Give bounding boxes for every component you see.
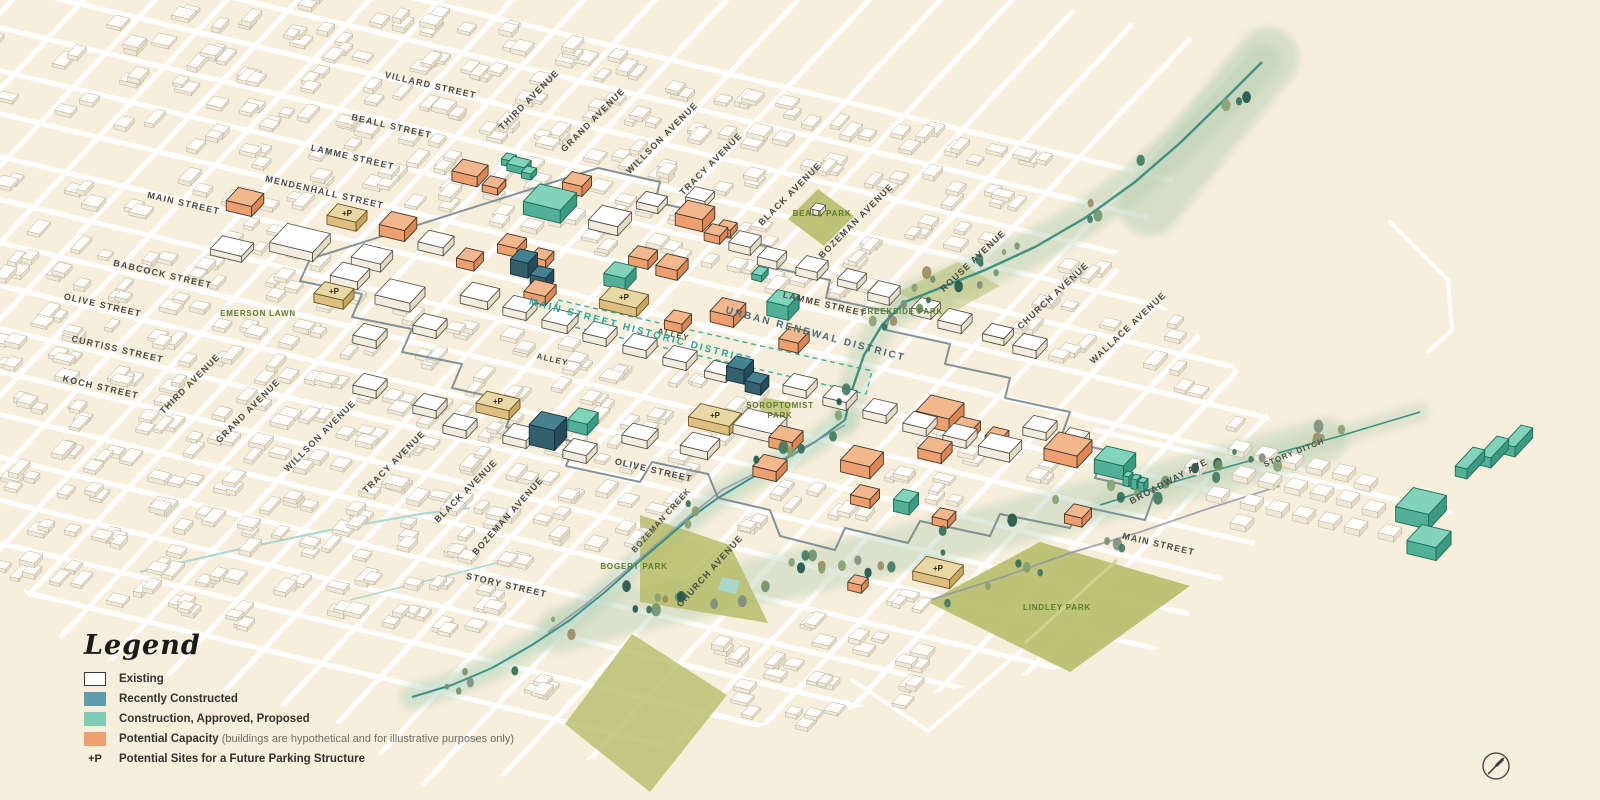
tree [890,316,897,326]
legend-item-note: (buildings are hypothetical and for illu… [219,733,514,745]
park-label: EMERSON LAWN [220,309,296,318]
tree [1052,495,1059,504]
tree [1215,460,1223,471]
tree [798,444,805,454]
tree [632,605,638,613]
tree [1014,242,1020,249]
tree [829,431,837,441]
tree [1107,480,1116,492]
tree [646,606,652,614]
tree [939,525,947,536]
legend-item-recently-constructed: Recently Constructed [84,691,514,706]
tree [1248,456,1253,463]
tree [551,617,555,623]
legend-item-label: Potential Sites for a Future Parking Str… [119,753,365,765]
legend-item-parking-sites: +P Potential Sites for a Future Parking … [84,751,514,766]
tree [1088,199,1094,207]
tree [944,599,951,608]
tree [692,506,699,516]
tree [911,284,917,292]
tree [985,582,991,590]
tree [787,447,795,458]
map-legend: Legend Existing Recently Constructed Con… [84,630,514,771]
legend-item-label: Construction, Approved, Proposed [119,713,310,725]
construction-swatch [84,712,106,726]
legend-item-label: Existing [119,673,164,685]
tree [818,564,825,574]
tree [836,398,841,405]
legend-item-potential-capacity: Potential Capacity (buildings are hypoth… [84,731,514,746]
tree [1117,492,1125,503]
tree [887,561,895,572]
tree [1002,249,1007,255]
tree [1104,537,1110,545]
legend-item-construction-approved-proposed: Construction, Approved, Proposed [84,711,514,726]
park-label: BOGERT PARK [600,562,667,571]
legend-item-existing: Existing [84,671,514,686]
parking-structure-mark: +P [329,287,340,296]
tree [1232,449,1237,455]
tree [651,603,661,616]
tree [877,561,884,570]
tree [685,520,692,529]
tree [835,410,843,420]
tree [1023,562,1031,573]
tree [753,456,759,464]
tree [838,560,846,571]
tree [926,297,931,304]
potential-capacity-swatch [84,732,106,746]
tree [788,558,795,567]
existing-swatch [84,672,106,686]
tree [1119,544,1126,553]
tree [1137,155,1145,166]
tree [1212,472,1220,483]
tree [710,598,718,609]
parking-symbol: +P [84,753,106,765]
tree [1236,97,1242,105]
legend-item-label: Potential Capacity (buildings are hypoth… [119,733,514,745]
tree [808,550,817,562]
parking-structure-mark: +P [710,411,721,420]
tree [977,281,983,289]
tree [686,500,691,507]
tree [655,593,661,602]
tree [761,581,770,593]
tree [801,550,809,561]
tree [1242,91,1251,103]
tree [738,595,747,607]
tree [869,316,877,327]
parking-structure-mark: +P [933,564,944,573]
tree [994,269,999,276]
tree [930,276,935,283]
tree [1314,420,1324,433]
tree [1037,569,1043,577]
legend-title: Legend [84,630,514,661]
tree [882,323,887,330]
tree [922,266,932,279]
tree [854,555,861,565]
parking-structure-mark: +P [619,293,630,302]
tree [941,549,946,555]
tree [567,629,575,640]
tree [797,562,805,573]
recently-constructed-swatch [84,692,106,706]
tree [864,568,871,578]
tree [1338,425,1345,435]
tree [842,383,851,395]
park-label: BEALL PARK [793,209,852,218]
park-label: CREEKSIDE PARK [861,307,943,316]
tree [622,580,631,592]
tree [1007,514,1017,527]
tree [778,441,788,454]
tree [1093,209,1102,221]
parking-structure-mark: +P [342,209,353,218]
tree [1221,99,1230,111]
parking-structure-mark: +P [493,397,504,406]
legend-item-label: Recently Constructed [119,693,238,705]
park-label: LINDLEY PARK [1023,603,1091,612]
tree [1087,216,1093,224]
tree [662,595,668,603]
tree [1015,559,1021,568]
